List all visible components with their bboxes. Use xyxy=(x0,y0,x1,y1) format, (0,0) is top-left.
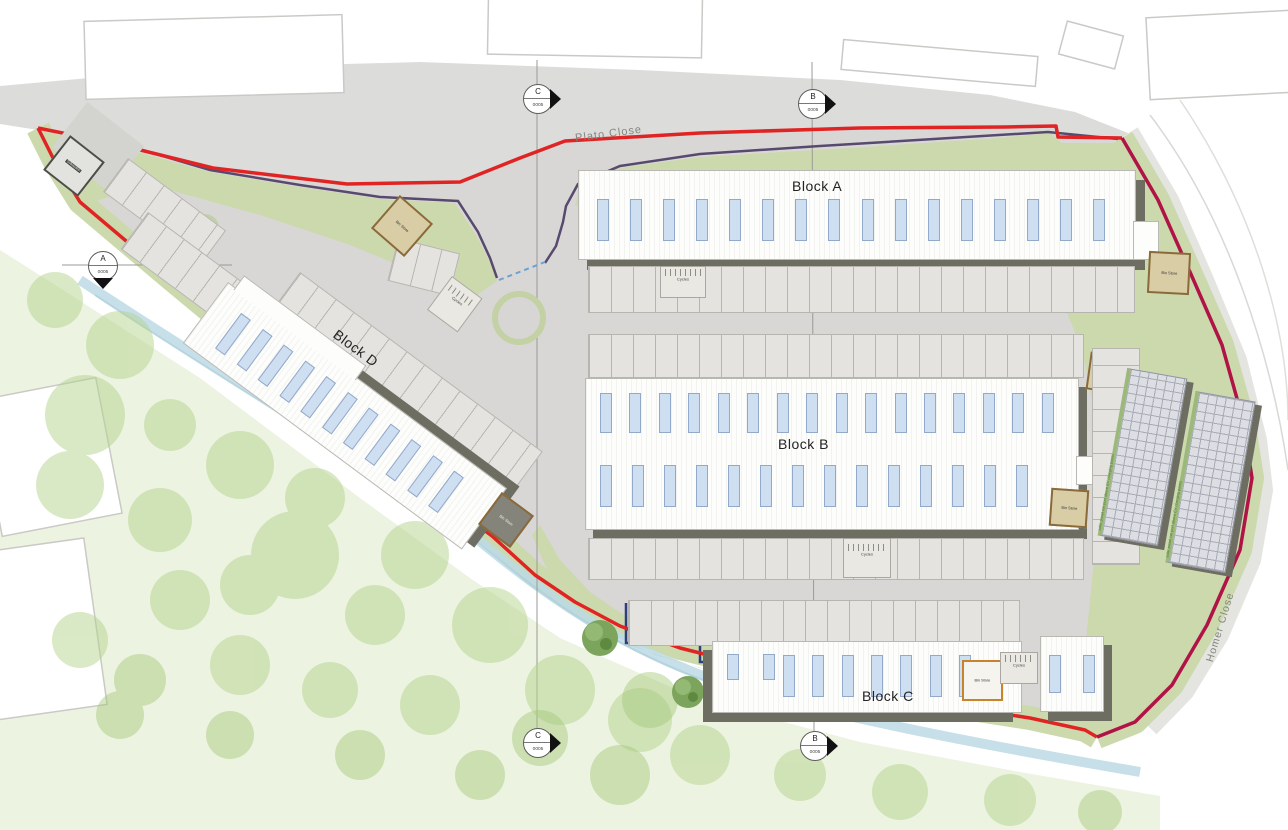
window-icon xyxy=(762,199,774,241)
window-icon xyxy=(1049,655,1061,693)
window-icon xyxy=(836,393,848,433)
window-icon xyxy=(597,199,609,241)
window-icon xyxy=(279,360,315,403)
window-icon xyxy=(696,465,708,507)
window-icon xyxy=(928,199,940,241)
cycle-stand-icon xyxy=(665,269,701,276)
window-icon xyxy=(663,199,675,241)
block-b-windows-bottom xyxy=(600,465,1028,507)
block-b-label: Block B xyxy=(778,436,829,452)
window-icon xyxy=(952,465,964,507)
cycle-stand-icon xyxy=(1005,655,1033,662)
window-icon xyxy=(930,655,942,697)
window-icon xyxy=(1060,199,1072,241)
window-icon xyxy=(777,393,789,433)
cycle-stands: Cycles xyxy=(843,538,891,578)
parking-row xyxy=(588,538,1084,580)
window-icon xyxy=(1093,199,1105,241)
window-icon xyxy=(696,199,708,241)
block-c-annex-building xyxy=(1040,636,1104,712)
window-icon xyxy=(258,344,294,387)
window-icon xyxy=(343,407,379,450)
window-icon xyxy=(920,465,932,507)
block-a-label: Block A xyxy=(792,178,842,194)
window-icon xyxy=(215,313,251,356)
window-icon xyxy=(1042,393,1054,433)
section-arrow-icon xyxy=(550,89,561,109)
block-b-building xyxy=(585,378,1079,530)
section-arrow-icon xyxy=(93,278,113,289)
window-icon xyxy=(364,423,400,466)
site-plan-canvas: Substation Block D Bin Store Bin Store C… xyxy=(0,0,1288,830)
window-icon xyxy=(961,199,973,241)
window-icon xyxy=(812,655,824,697)
section-arrow-icon xyxy=(825,94,836,114)
bin-store: Bin Store xyxy=(1147,251,1191,295)
window-icon xyxy=(385,439,421,482)
section-marker-b-bottom: B 0005 xyxy=(800,731,830,761)
window-icon xyxy=(865,393,877,433)
window-icon xyxy=(300,376,336,419)
window-icon xyxy=(862,199,874,241)
window-icon xyxy=(795,199,807,241)
window-icon xyxy=(718,393,730,433)
window-icon xyxy=(1027,199,1039,241)
window-icon xyxy=(1083,655,1095,693)
section-marker-c-bottom: C 0005 xyxy=(523,728,553,758)
parking-row xyxy=(588,334,1084,378)
window-icon xyxy=(792,465,804,507)
window-icon xyxy=(428,471,464,514)
bin-store: Bin Store xyxy=(962,660,1003,701)
window-icon xyxy=(763,654,775,680)
window-icon xyxy=(407,455,443,498)
window-icon xyxy=(953,393,965,433)
window-icon xyxy=(983,393,995,433)
parking-row xyxy=(628,600,1020,646)
window-icon xyxy=(630,199,642,241)
window-icon xyxy=(924,393,936,433)
window-icon xyxy=(322,392,358,435)
window-icon xyxy=(828,199,840,241)
window-icon xyxy=(806,393,818,433)
cycle-stands: Cycles xyxy=(1000,652,1038,684)
substation-label: Substation xyxy=(66,159,83,173)
annex-windows xyxy=(1049,655,1095,693)
window-icon xyxy=(729,199,741,241)
window-icon xyxy=(856,465,868,507)
window-icon xyxy=(747,393,759,433)
window-icon xyxy=(984,465,996,507)
window-icon xyxy=(994,199,1006,241)
window-icon xyxy=(1012,393,1024,433)
window-icon xyxy=(688,393,700,433)
block-c-label: Block C xyxy=(862,688,914,704)
section-marker-c-top: C 0005 xyxy=(523,84,553,114)
window-icon xyxy=(824,465,836,507)
window-icon xyxy=(783,655,795,697)
block-a-windows xyxy=(597,199,1105,241)
window-icon xyxy=(629,393,641,433)
window-icon xyxy=(600,465,612,507)
section-marker-a-left: A 0005 xyxy=(88,251,118,281)
window-icon xyxy=(842,655,854,697)
block-c-windows-small xyxy=(727,654,775,680)
block-a-building xyxy=(578,170,1136,260)
cycle-stands: Cycles xyxy=(660,266,706,298)
window-icon xyxy=(728,465,740,507)
block-b-windows-top xyxy=(600,393,1054,433)
window-icon xyxy=(727,654,739,680)
window-icon xyxy=(632,465,644,507)
window-icon xyxy=(895,393,907,433)
section-arrow-icon xyxy=(550,733,561,753)
turning-head xyxy=(495,294,543,342)
section-marker-b-top: B 0005 xyxy=(798,89,828,119)
window-icon xyxy=(664,465,676,507)
window-icon xyxy=(1016,465,1028,507)
bin-store: Bin Store xyxy=(1049,488,1090,529)
window-icon xyxy=(895,199,907,241)
window-icon xyxy=(600,393,612,433)
cycle-stand-icon xyxy=(848,544,886,551)
window-icon xyxy=(760,465,772,507)
section-arrow-icon xyxy=(827,736,838,756)
window-icon xyxy=(659,393,671,433)
window-icon xyxy=(236,329,272,372)
window-icon xyxy=(888,465,900,507)
